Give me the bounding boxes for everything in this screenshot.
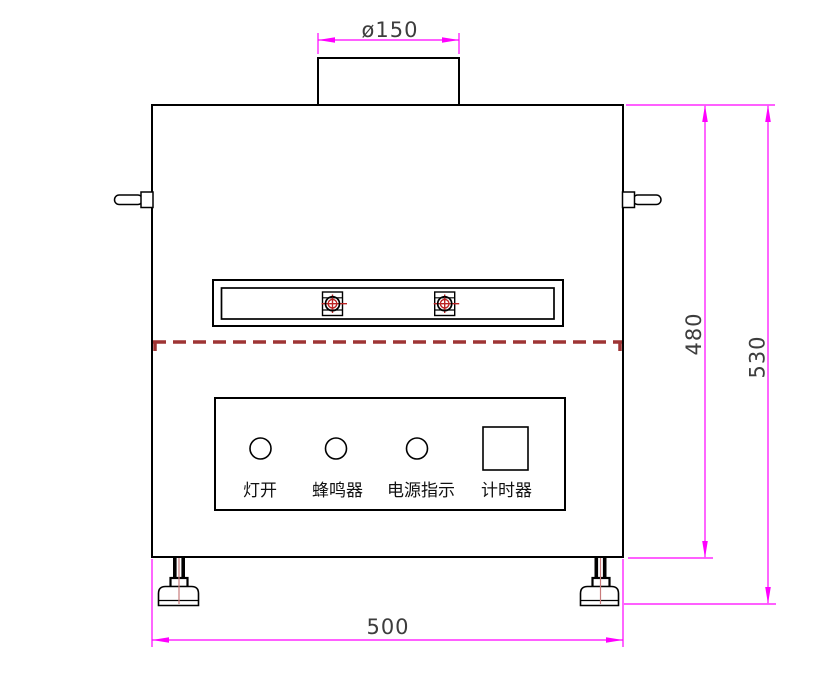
left-handle-pin [115,195,143,205]
vent-diameter-value: ø150 [362,18,419,42]
power-indicator-circle [407,438,428,459]
right-foot-stem-bar-a [595,557,599,579]
left-foot-stem-bar-b [181,557,185,579]
body-height-value: 480 [682,312,706,355]
lamp-switch-label: 灯开 [243,481,277,501]
left-handle [115,192,154,208]
technical-drawing-canvas: 灯开 蜂鸣器 电源指示 计时器 ø150 480 [0,0,837,691]
test-chamber-front-view: 灯开 蜂鸣器 电源指示 计时器 ø150 480 [0,0,837,691]
right-handle-bracket [623,192,635,208]
timer-label: 计时器 [481,481,532,501]
left-handle-bracket [141,192,153,208]
timer-window-square [483,427,528,470]
buzzer-label: 蜂鸣器 [312,481,363,501]
right-handle-pin [633,195,661,205]
drawing-background [0,0,837,691]
left-foot-stem-bar-a [173,557,177,579]
buzzer-circle [326,438,347,459]
right-foot-stem-bar-b [603,557,607,579]
right-foot-pad [581,587,619,606]
body-width-value: 500 [366,615,409,639]
lamp-switch-circle [250,438,271,459]
power-indicator-label: 电源指示 [387,481,455,501]
overall-height-value: 530 [746,335,770,378]
right-handle [623,192,662,208]
